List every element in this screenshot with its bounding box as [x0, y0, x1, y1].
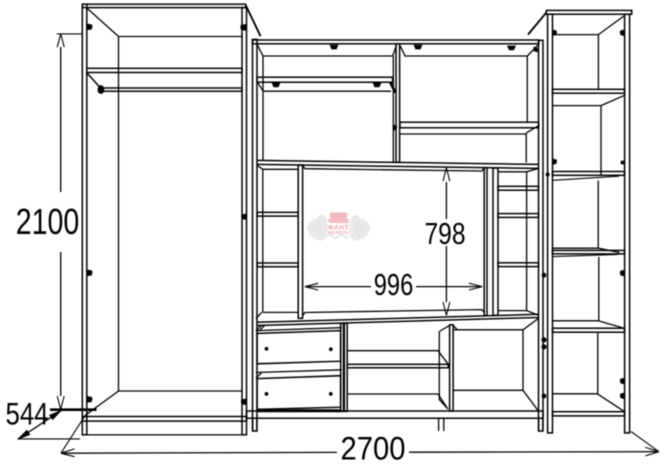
svg-text:МЕБЕЛЬ: МЕБЕЛЬ: [328, 230, 349, 235]
svg-text:544: 544: [6, 396, 49, 432]
svg-text:996: 996: [374, 268, 414, 302]
svg-text:2700: 2700: [341, 431, 406, 464]
svg-text:798: 798: [425, 217, 466, 251]
svg-text:2100: 2100: [16, 201, 80, 242]
